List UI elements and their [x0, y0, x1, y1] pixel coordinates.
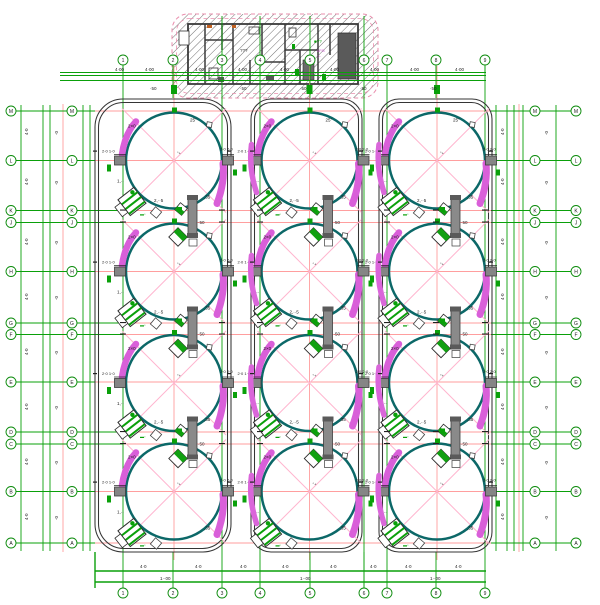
svg-text:4·0: 4·0	[370, 564, 377, 569]
svg-text:4·0: 4·0	[500, 513, 505, 520]
svg-text:4·00: 4·00	[280, 67, 290, 72]
svg-text:F: F	[70, 333, 73, 339]
svg-text:·0: ·0	[54, 516, 59, 520]
svg-text:·0: ·0	[544, 406, 549, 410]
svg-text:7: 7	[386, 591, 389, 597]
svg-text:·0: ·0	[544, 296, 549, 300]
svg-text:·50: ·50	[300, 86, 307, 91]
svg-text:·0: ·0	[54, 131, 59, 135]
svg-text:4·00: 4·00	[238, 67, 248, 72]
svg-text:·0: ·0	[54, 406, 59, 410]
svg-text:H: H	[533, 270, 537, 276]
svg-text:4·0: 4·0	[500, 458, 505, 465]
svg-text:2: 2	[172, 591, 175, 597]
svg-text:1: 1	[122, 58, 125, 64]
svg-text:·?·: ·?·	[316, 54, 321, 59]
svg-text:D: D	[574, 430, 578, 436]
svg-text:·0: ·0	[544, 181, 549, 185]
svg-text:H: H	[9, 270, 13, 276]
svg-text:4: 4	[259, 591, 262, 597]
svg-text:4·0: 4·0	[500, 293, 505, 300]
svg-text:F: F	[9, 333, 12, 339]
svg-text:■??: ■??	[314, 39, 322, 44]
svg-text:M: M	[574, 109, 578, 115]
svg-text:·50: ·50	[150, 86, 157, 91]
svg-text:F: F	[574, 333, 577, 339]
svg-text:2: 2	[172, 58, 175, 64]
svg-text:C: C	[9, 442, 13, 448]
svg-text:1··00: 1··00	[430, 576, 441, 581]
svg-text:4·00: 4·00	[410, 67, 420, 72]
svg-text:4·00: 4·00	[195, 67, 205, 72]
svg-text:·50: ·50	[360, 86, 367, 91]
svg-text:1··00: 1··00	[300, 576, 311, 581]
svg-text:4·0: 4·0	[240, 564, 247, 569]
svg-text:???: ???	[240, 48, 248, 53]
svg-text:4·00: 4·00	[330, 67, 340, 72]
svg-text:H: H	[70, 270, 74, 276]
svg-text:M: M	[533, 109, 537, 115]
svg-text:4: 4	[259, 58, 262, 64]
svg-text:4·0: 4·0	[500, 178, 505, 185]
svg-text:·0: ·0	[54, 351, 59, 355]
svg-text:·0: ·0	[544, 461, 549, 465]
svg-text:4·0: 4·0	[24, 348, 29, 355]
svg-text:·0: ·0	[544, 241, 549, 245]
svg-text:LFG: LFG	[317, 48, 325, 53]
svg-text:L: L	[71, 159, 74, 165]
svg-text:1: 1	[122, 591, 125, 597]
svg-text:C: C	[533, 442, 537, 448]
svg-text:4·0: 4·0	[500, 348, 505, 355]
svg-text:L: L	[575, 159, 578, 165]
svg-text:·0: ·0	[544, 131, 549, 135]
svg-text:9: 9	[484, 591, 487, 597]
svg-text:G: G	[533, 321, 537, 327]
svg-text:8: 8	[435, 58, 438, 64]
svg-text:·50: ·50	[430, 86, 437, 91]
svg-text:1··00: 1··00	[160, 576, 171, 581]
svg-text:4·0: 4·0	[455, 564, 462, 569]
svg-text:·50: ·50	[240, 86, 247, 91]
svg-text:·0: ·0	[54, 241, 59, 245]
svg-text:·0: ·0	[54, 461, 59, 465]
svg-text:4·0: 4·0	[24, 128, 29, 135]
svg-text:4·0: 4·0	[24, 403, 29, 410]
svg-text:5: 5	[309, 591, 312, 597]
svg-text:·0: ·0	[54, 296, 59, 300]
svg-text:4·0: 4·0	[500, 128, 505, 135]
svg-text:4·0: 4·0	[140, 564, 147, 569]
svg-text:4·0: 4·0	[330, 564, 337, 569]
svg-text:4·00: 4·00	[370, 67, 380, 72]
svg-text:8: 8	[435, 591, 438, 597]
svg-text:L: L	[10, 159, 13, 165]
svg-text:C: C	[574, 442, 578, 448]
svg-text:L: L	[534, 159, 537, 165]
svg-text:4·0: 4·0	[282, 564, 289, 569]
svg-text:G: G	[9, 321, 13, 327]
svg-text:C: C	[70, 442, 74, 448]
svg-text:6: 6	[363, 591, 366, 597]
svg-text:D: D	[533, 430, 537, 436]
svg-text:H: H	[574, 270, 578, 276]
svg-text:4·0: 4·0	[500, 403, 505, 410]
svg-text:4·0: 4·0	[24, 238, 29, 245]
svg-text:6: 6	[363, 58, 366, 64]
svg-text:4·0: 4·0	[24, 178, 29, 185]
svg-text:4·0: 4·0	[24, 458, 29, 465]
svg-text:·0: ·0	[54, 181, 59, 185]
svg-text:9: 9	[484, 58, 487, 64]
svg-text:G: G	[574, 321, 578, 327]
svg-text:4·00: 4·00	[455, 67, 465, 72]
svg-text:G: G	[70, 321, 74, 327]
svg-text:4·0: 4·0	[405, 564, 412, 569]
svg-text:·0: ·0	[544, 516, 549, 520]
svg-text:4·00: 4·00	[115, 67, 125, 72]
svg-text:M: M	[9, 109, 13, 115]
svg-text:4·0: 4·0	[24, 513, 29, 520]
svg-text:F: F	[533, 333, 536, 339]
svg-text:4·0: 4·0	[500, 238, 505, 245]
svg-text:7: 7	[386, 58, 389, 64]
svg-text:D: D	[9, 430, 13, 436]
svg-text:4·0: 4·0	[195, 564, 202, 569]
svg-text:M: M	[70, 109, 74, 115]
svg-text:·0: ·0	[544, 351, 549, 355]
svg-text:5: 5	[309, 58, 312, 64]
svg-text:3: 3	[221, 591, 224, 597]
svg-text:3: 3	[221, 58, 224, 64]
svg-text:D: D	[70, 430, 74, 436]
svg-text:4·00: 4·00	[145, 67, 155, 72]
svg-text:4·0: 4·0	[24, 293, 29, 300]
